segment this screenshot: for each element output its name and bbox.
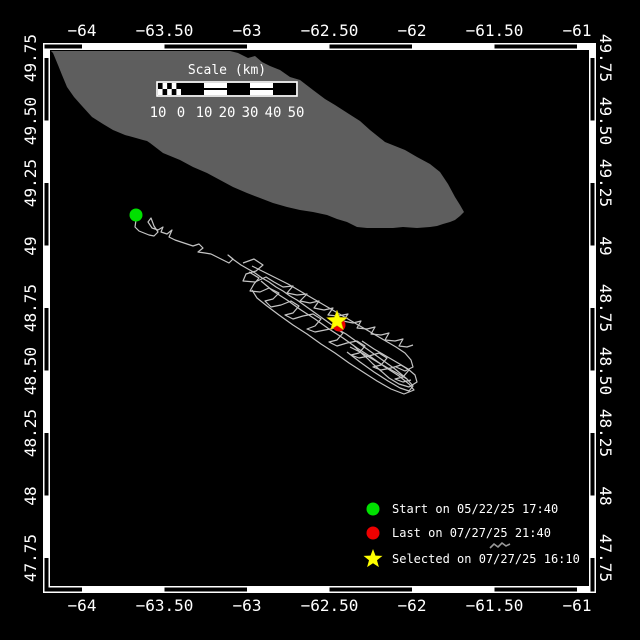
legend-selected-icon [364, 549, 383, 567]
y-tick-left-0: 49.75 [22, 26, 40, 90]
scalebar-seg-stripe [250, 88, 273, 90]
frame-seg-top [165, 45, 248, 49]
scalebar-seg-stripe [204, 88, 227, 90]
frame-seg-right [591, 433, 595, 496]
y-tick-left-1: 49.50 [22, 89, 40, 153]
y-tick-right-7: 48 [596, 464, 614, 528]
x-tick-bottom-5: −61.50 [460, 597, 530, 615]
y-tick-right-0: 49.75 [596, 26, 614, 90]
frame-seg-bottom [165, 588, 248, 592]
scalebar-check-cell [163, 83, 168, 89]
y-tick-left-5: 48.50 [22, 339, 40, 403]
x-tick-top-2: −63 [212, 22, 282, 40]
track-segment-2[interactable] [249, 272, 411, 382]
y-tick-right-4: 48.75 [596, 276, 614, 340]
frame-seg-top [45, 45, 83, 49]
y-tick-left-8: 47.75 [22, 526, 40, 590]
x-tick-bottom-6: −61 [542, 597, 612, 615]
scalebar-title: Scale (km) [167, 63, 287, 78]
frame-seg-left [45, 58, 49, 121]
x-tick-top-3: −62.50 [295, 22, 365, 40]
y-tick-right-1: 49.50 [596, 89, 614, 153]
scalebar-check-cell [167, 83, 172, 89]
y-tick-right-5: 48.50 [596, 339, 614, 403]
scalebar-check-cell [176, 89, 181, 95]
map-stage: Scale (km) −64−64−63.50−63.50−63−63−62.5… [0, 0, 640, 640]
frame-seg-left [45, 308, 49, 371]
frame-seg-left [45, 183, 49, 246]
x-tick-top-1: −63.50 [130, 22, 200, 40]
x-tick-top-5: −61.50 [460, 22, 530, 40]
frame-seg-left [45, 558, 49, 592]
frame-seg-bottom [495, 588, 578, 592]
frame-seg-top [495, 45, 578, 49]
track-segment-1[interactable] [243, 259, 413, 347]
scalebar-check-cell [172, 83, 177, 89]
y-tick-left-3: 49 [22, 214, 40, 278]
scalebar-check-cell [158, 89, 163, 95]
small-islet [490, 543, 510, 548]
frame-seg-right [591, 308, 595, 371]
frame-seg-top [330, 45, 413, 49]
x-tick-top-0: −64 [47, 22, 117, 40]
scalebar-check-cell [167, 89, 172, 95]
x-tick-bottom-1: −63.50 [130, 597, 200, 615]
scalebar-seg-black [227, 83, 250, 95]
scalebar-num-6: 50 [282, 105, 310, 121]
x-tick-bottom-3: −62.50 [295, 597, 365, 615]
scalebar-check-cell [176, 83, 181, 89]
legend-label-last: Last on 07/27/25 21:40 [392, 526, 551, 540]
legend-start-icon [367, 503, 380, 516]
scalebar-check-cell [158, 83, 163, 89]
frame-seg-right [591, 558, 595, 592]
x-tick-bottom-4: −62 [377, 597, 447, 615]
frame-seg-right [591, 58, 595, 121]
frame-seg-bottom [330, 588, 413, 592]
map-canvas [0, 0, 640, 640]
scalebar-seg-black [181, 83, 204, 95]
frame-seg-left [45, 433, 49, 496]
frame-seg-bottom [45, 588, 83, 592]
track-segment-3[interactable] [252, 281, 414, 394]
y-tick-right-6: 48.25 [596, 401, 614, 465]
scalebar-seg-black [273, 83, 296, 95]
y-tick-right-8: 47.75 [596, 526, 614, 590]
legend-last-icon [367, 527, 380, 540]
x-tick-bottom-2: −63 [212, 597, 282, 615]
frame-seg-right [591, 183, 595, 246]
y-tick-left-4: 48.75 [22, 276, 40, 340]
legend-label-selected: Selected on 07/27/25 16:10 [392, 552, 580, 566]
scalebar-check-cell [172, 89, 177, 95]
x-tick-top-4: −62 [377, 22, 447, 40]
y-tick-left-2: 49.25 [22, 151, 40, 215]
y-tick-left-7: 48 [22, 464, 40, 528]
x-tick-bottom-0: −64 [47, 597, 117, 615]
legend-label-start: Start on 05/22/25 17:40 [392, 502, 558, 516]
scalebar-check-cell [163, 89, 168, 95]
y-tick-left-6: 48.25 [22, 401, 40, 465]
start-marker[interactable] [130, 209, 143, 222]
y-tick-right-3: 49 [596, 214, 614, 278]
y-tick-right-2: 49.25 [596, 151, 614, 215]
